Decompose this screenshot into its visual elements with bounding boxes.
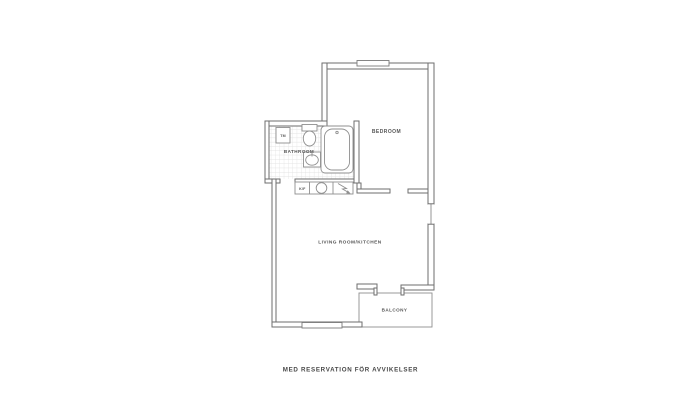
toilet — [302, 125, 317, 147]
wall-bedroom-living-right — [408, 189, 428, 193]
bathroom-label: BATHROOM — [284, 149, 314, 154]
window-living-bottom — [302, 323, 342, 329]
kitchen-counter: K/F — [295, 182, 353, 194]
wall-living-left — [272, 179, 276, 327]
wall-bathroom-top — [265, 121, 327, 126]
washing-machine: TM — [276, 128, 290, 144]
wall-right-lower — [428, 224, 434, 287]
disclaimer-caption: MED RESERVATION FÖR AVVIKELSER — [283, 367, 418, 374]
balcony-label: BALCONY — [382, 308, 408, 313]
bathtub — [321, 126, 353, 173]
wall-bedroom-left — [322, 63, 327, 126]
washbasin — [304, 152, 321, 167]
floorplan-page: TM K/F BEDROOM BATHROOM LIVIN — [0, 0, 700, 400]
toilet-tank — [302, 125, 317, 132]
floorplan-drawing: TM K/F BEDROOM BATHROOM LIVIN — [0, 0, 700, 400]
wall-balcony-door-jamb-left — [374, 288, 377, 295]
kitchen-sink-icon — [316, 183, 327, 194]
fridge-freezer-label: K/F — [299, 187, 306, 191]
wall-bathroom-left — [265, 121, 269, 183]
bathtub-drain — [336, 131, 338, 133]
window-right-wall — [428, 204, 434, 225]
toilet-bowl — [303, 131, 315, 146]
walls — [265, 63, 434, 327]
bathtub-inner — [325, 129, 350, 170]
wall-bedroom-living-left — [357, 189, 390, 193]
wall-balcony-right-stub — [401, 285, 434, 290]
washing-machine-label: TM — [280, 134, 286, 138]
living-room-label: LIVING ROOM/KITCHEN — [318, 240, 382, 246]
window-bedroom-top — [357, 61, 389, 67]
wall-right-upper — [428, 63, 434, 204]
wall-bathroom-right — [354, 121, 359, 183]
bedroom-label: BEDROOM — [372, 129, 401, 135]
wall-balcony-door-jamb-right — [401, 288, 404, 295]
